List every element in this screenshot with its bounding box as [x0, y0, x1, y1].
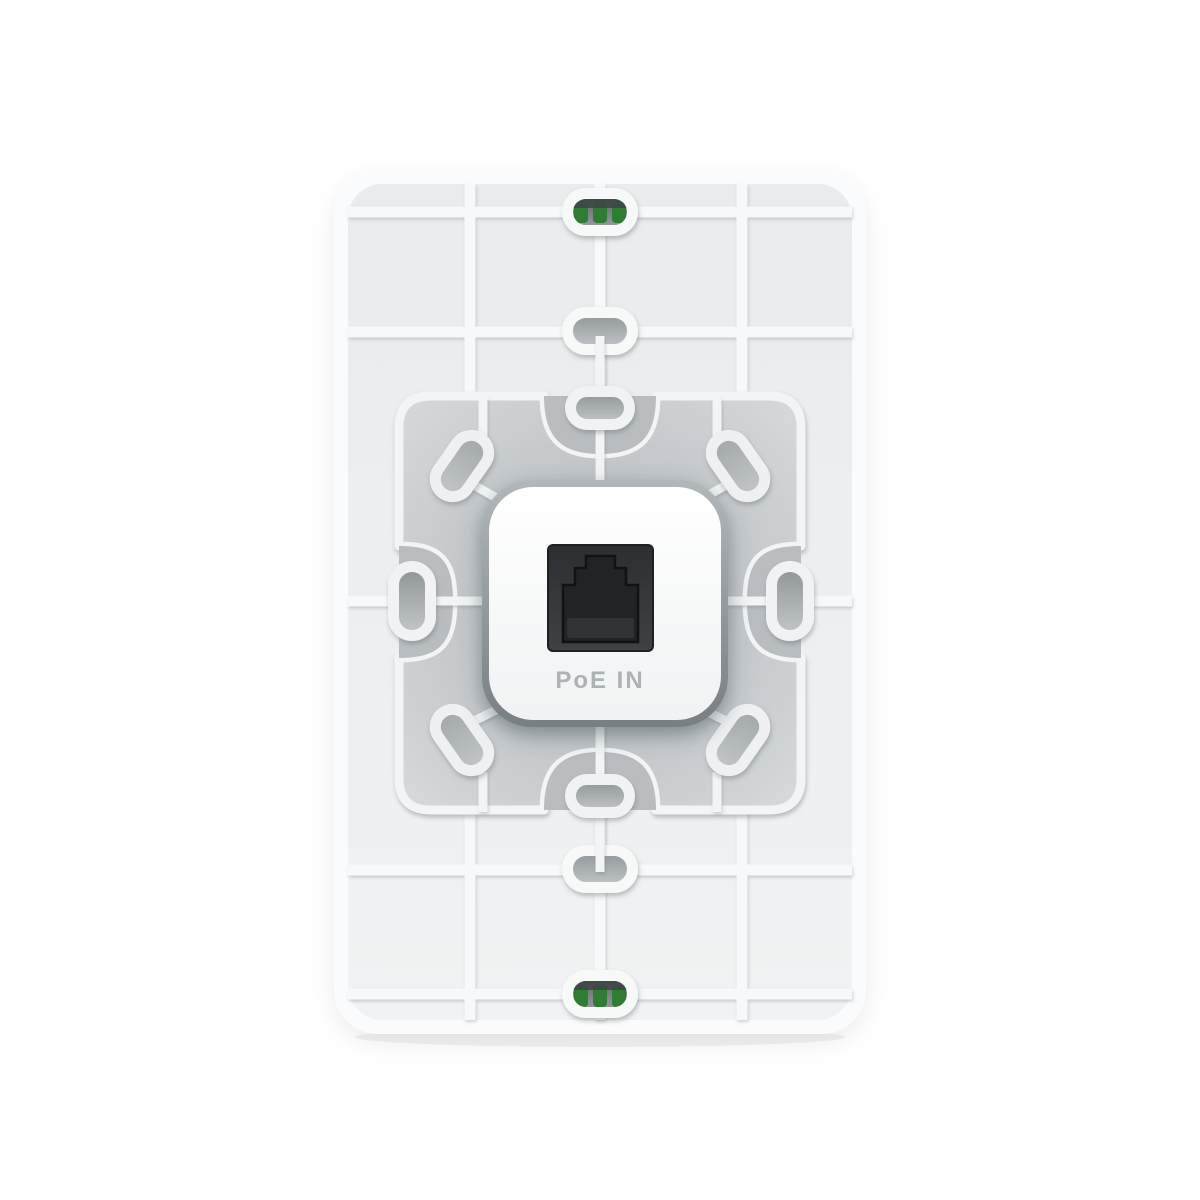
poe-in-label: PoE IN: [555, 667, 644, 694]
wall-ap-back-panel-photo: PoE IN: [0, 0, 1200, 1200]
terminal-slot-top: [568, 194, 633, 231]
product-photo-canvas: PoE IN: [0, 0, 1200, 1200]
mid-slot-right: [772, 567, 809, 636]
mid-slot-bottom: [571, 780, 630, 813]
mid-slot-left: [394, 567, 431, 636]
terminal-contacts-top: [573, 199, 627, 223]
rj45-jack-reflection: [567, 618, 634, 638]
terminal-slot-bottom: [568, 976, 633, 1013]
terminal-contacts-bottom: [573, 981, 627, 1007]
terminal-lip-shadow: [573, 199, 627, 208]
mid-slot-top: [571, 392, 630, 425]
rj45-port: [548, 545, 653, 651]
ap-module: PoE IN: [482, 480, 728, 727]
terminal-lip-shadow: [573, 981, 627, 990]
